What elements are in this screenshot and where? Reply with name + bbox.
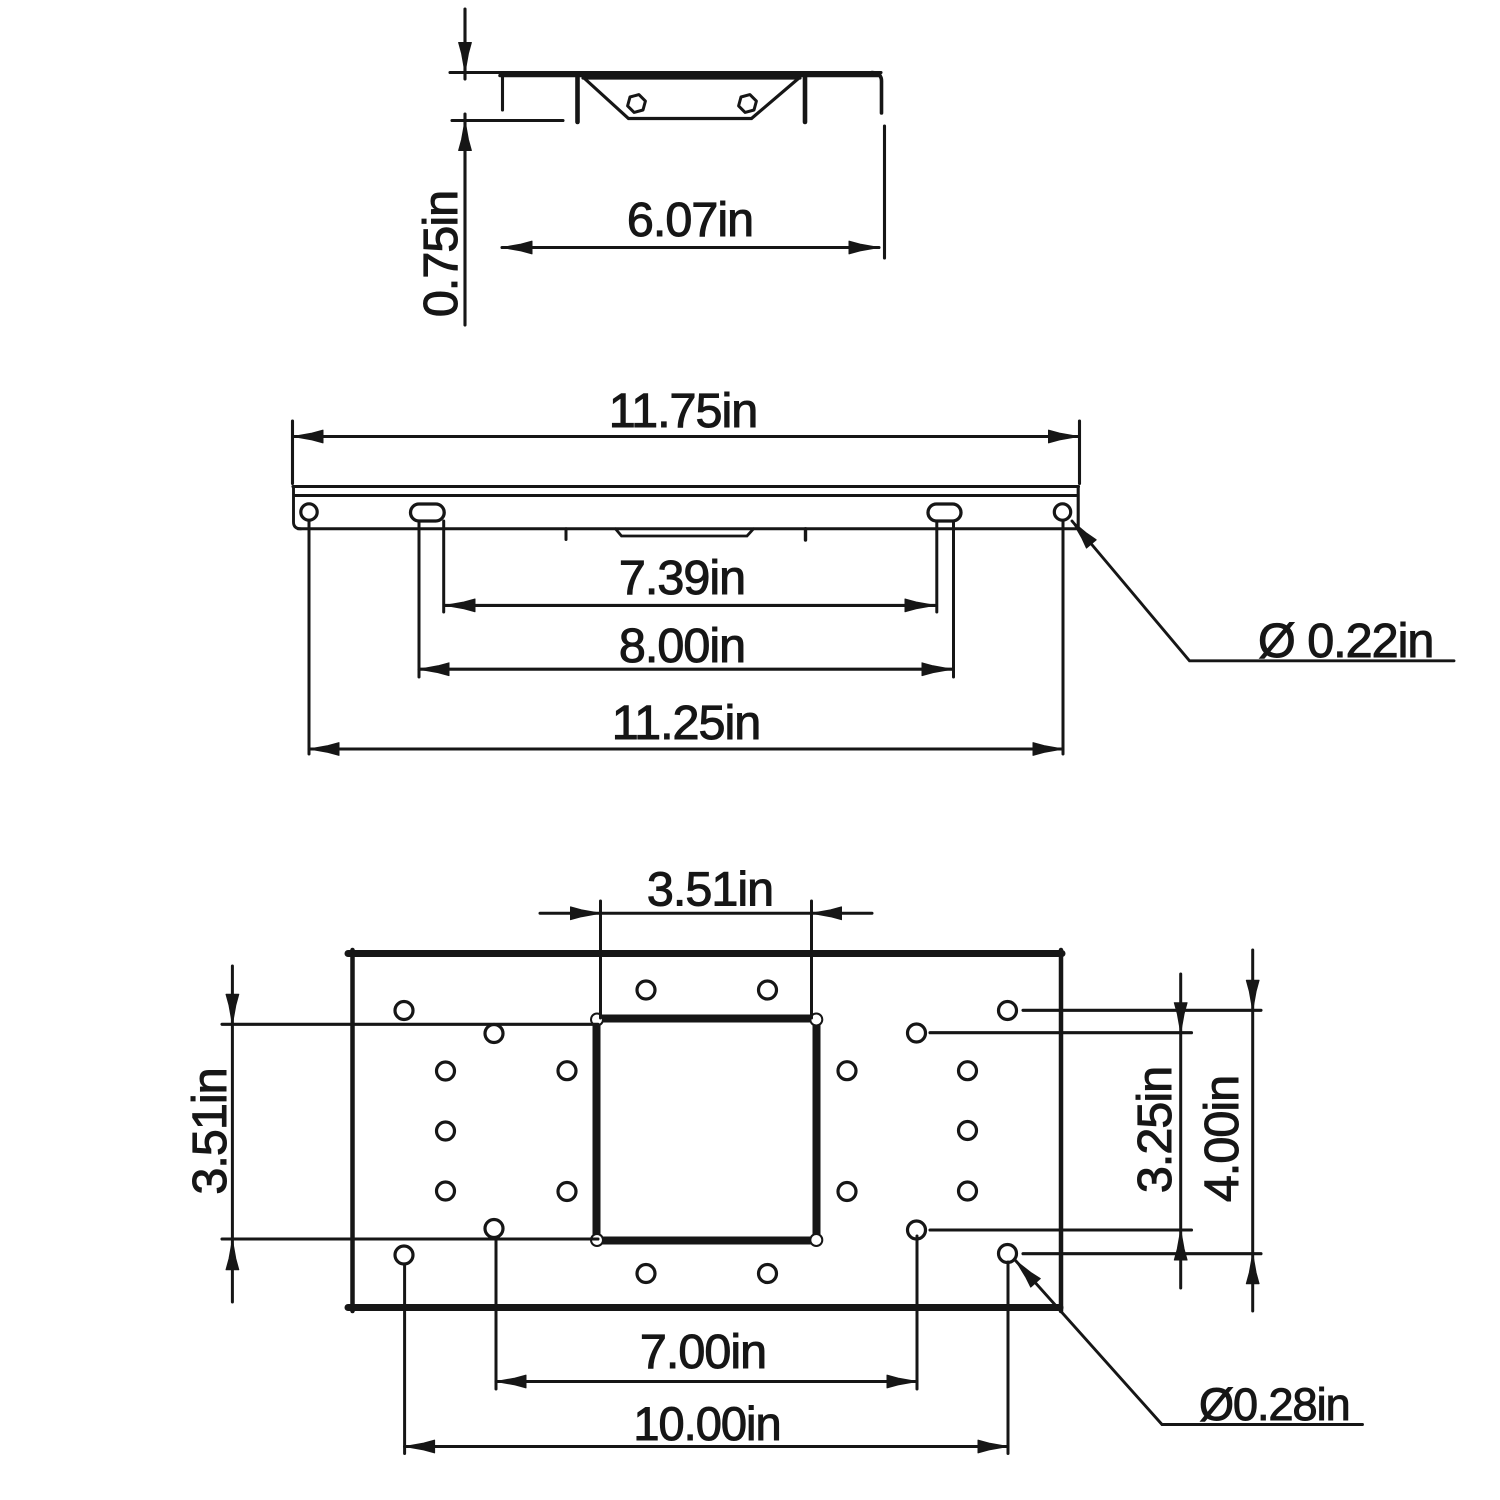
svg-text:Ø 0.22in: Ø 0.22in bbox=[1258, 614, 1433, 668]
svg-text:3.51in: 3.51in bbox=[183, 1068, 237, 1194]
svg-text:4.00in: 4.00in bbox=[1195, 1076, 1249, 1202]
svg-text:7.00in: 7.00in bbox=[640, 1325, 766, 1379]
svg-text:0.75in: 0.75in bbox=[414, 191, 468, 317]
svg-text:7.39in: 7.39in bbox=[619, 551, 745, 605]
svg-text:10.00in: 10.00in bbox=[633, 1397, 780, 1450]
svg-text:3.51in: 3.51in bbox=[647, 863, 773, 917]
svg-text:11.75in: 11.75in bbox=[609, 384, 758, 438]
svg-text:6.07in: 6.07in bbox=[627, 193, 753, 247]
svg-text:8.00in: 8.00in bbox=[619, 619, 745, 673]
svg-text:3.25in: 3.25in bbox=[1128, 1067, 1182, 1193]
svg-text:Ø0.28in: Ø0.28in bbox=[1199, 1379, 1350, 1430]
svg-text:11.25in: 11.25in bbox=[612, 696, 761, 750]
